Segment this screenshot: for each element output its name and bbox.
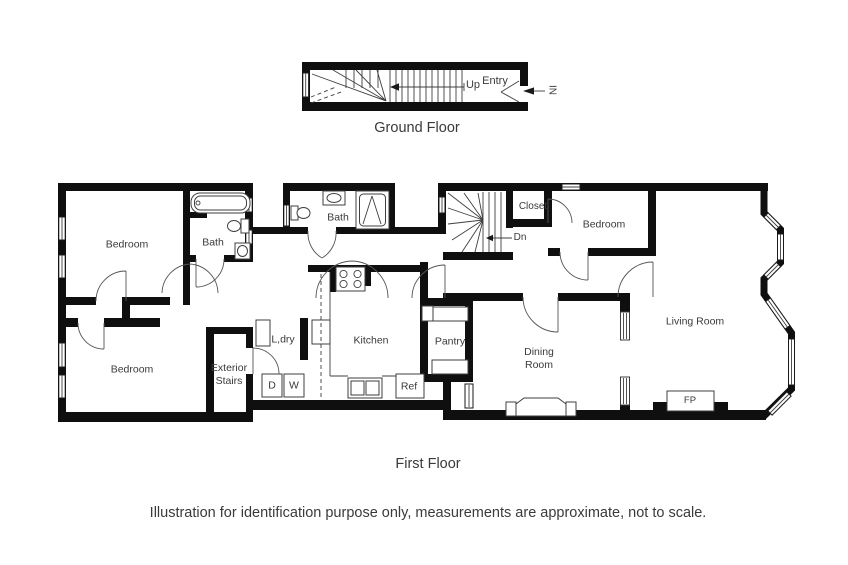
label-refrigerator: Ref [401, 380, 417, 393]
stairs-icon [448, 192, 501, 252]
sink-icon [323, 191, 345, 205]
label-closet: Closet [519, 201, 547, 214]
label-dryer: D [268, 379, 276, 392]
toilet-icon [228, 219, 250, 233]
label-pantry: Pantry [435, 335, 465, 348]
label-living-room: Living Room [666, 315, 724, 328]
label-bedroom-top-right: Bedroom [583, 218, 626, 231]
label-bedroom-bottom-left: Bedroom [111, 363, 154, 376]
label-washer: W [289, 379, 299, 392]
dining-buffet [506, 398, 576, 416]
kitchen-sink-icon [348, 378, 382, 398]
label-up: Up [466, 79, 480, 93]
pocket-doors [621, 312, 630, 405]
label-entry: Entry [482, 75, 508, 89]
first-floor-title: First Floor [395, 455, 460, 473]
up-arrow [390, 83, 464, 91]
ground-floor-title: Ground Floor [374, 119, 459, 137]
dn-arrow [486, 235, 512, 241]
stove-icon [336, 267, 365, 291]
first-floor-drawing [58, 183, 795, 422]
window [303, 73, 309, 97]
floor-plan-drawing [0, 0, 848, 565]
in-arrow [523, 87, 545, 94]
shower-icon [356, 191, 389, 229]
label-bedroom-top-left: Bedroom [106, 238, 149, 251]
sink-icon [235, 243, 250, 259]
label-bath-left: Bath [202, 236, 224, 249]
floor-plan-page: Ground Floor Up Entry IN Bedroom Bath Ba… [0, 0, 848, 565]
label-bath-middle: Bath [327, 211, 349, 224]
laundry-appliance [256, 320, 270, 346]
label-dining-room: Dining Room [524, 346, 554, 372]
label-in: IN [545, 85, 558, 95]
ground-stairs-icon [311, 70, 462, 103]
disclaimer-text: Illustration for identification purpose … [150, 504, 707, 522]
bathtub-icon [191, 193, 250, 213]
label-laundry: L,dry [271, 333, 294, 346]
label-fireplace: FP [684, 395, 696, 407]
label-dn: Dn [514, 232, 527, 245]
label-exterior-stairs: Exterior Stairs [211, 362, 247, 388]
ground-floor-drawing [302, 62, 545, 111]
label-kitchen: Kitchen [353, 334, 388, 347]
toilet-icon [291, 206, 310, 220]
